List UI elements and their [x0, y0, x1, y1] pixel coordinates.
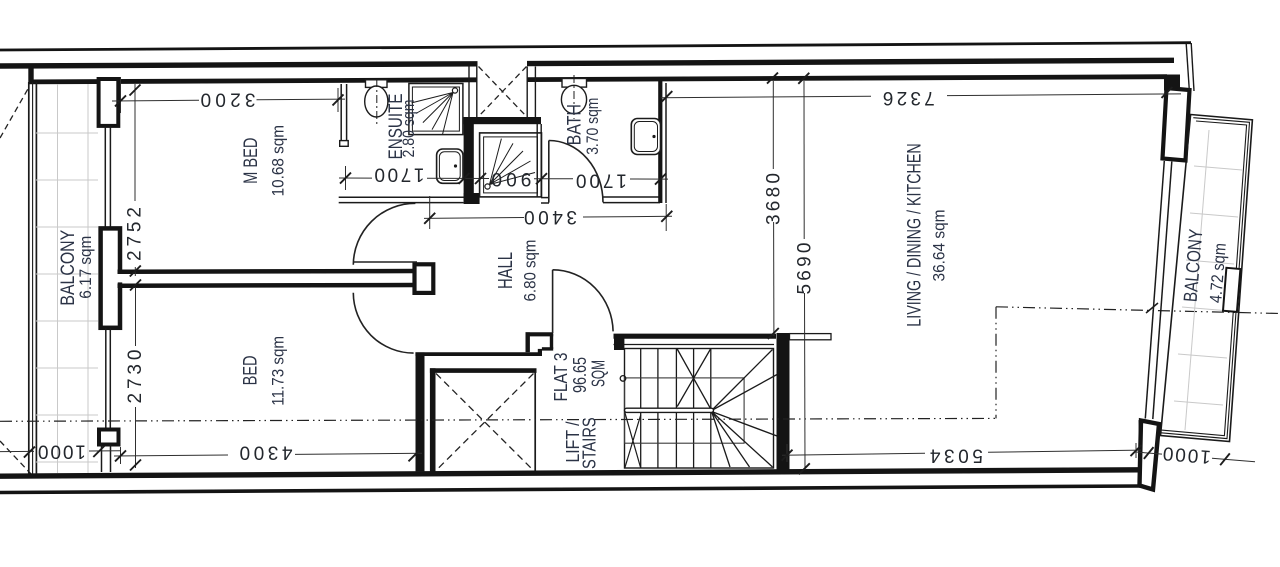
svg-text:FLAT 3: FLAT 3 — [551, 353, 571, 402]
svg-text:BED: BED — [241, 355, 262, 385]
svg-text:11.73 sqm: 11.73 sqm — [268, 336, 287, 406]
svg-text:SQM: SQM — [588, 360, 608, 387]
svg-text:HALL: HALL — [495, 252, 517, 289]
svg-text:900: 900 — [491, 168, 531, 189]
svg-text:6.17 sqm: 6.17 sqm — [76, 236, 95, 299]
svg-text:36.64 sqm: 36.64 sqm — [930, 210, 949, 282]
svg-text:LIVING / DINING / KITCHEN: LIVING / DINING / KITCHEN — [905, 143, 926, 326]
svg-text:M BED: M BED — [241, 138, 262, 184]
svg-text:96.65: 96.65 — [570, 357, 590, 393]
svg-text:6.80 sqm: 6.80 sqm — [521, 240, 540, 302]
svg-text:2.80 sqm: 2.80 sqm — [399, 100, 418, 158]
svg-text:10.68 sqm: 10.68 sqm — [269, 125, 288, 196]
svg-text:1000: 1000 — [38, 440, 86, 461]
svg-text:STAIRS: STAIRS — [580, 417, 600, 469]
svg-text:3.70 sqm: 3.70 sqm — [583, 98, 602, 155]
